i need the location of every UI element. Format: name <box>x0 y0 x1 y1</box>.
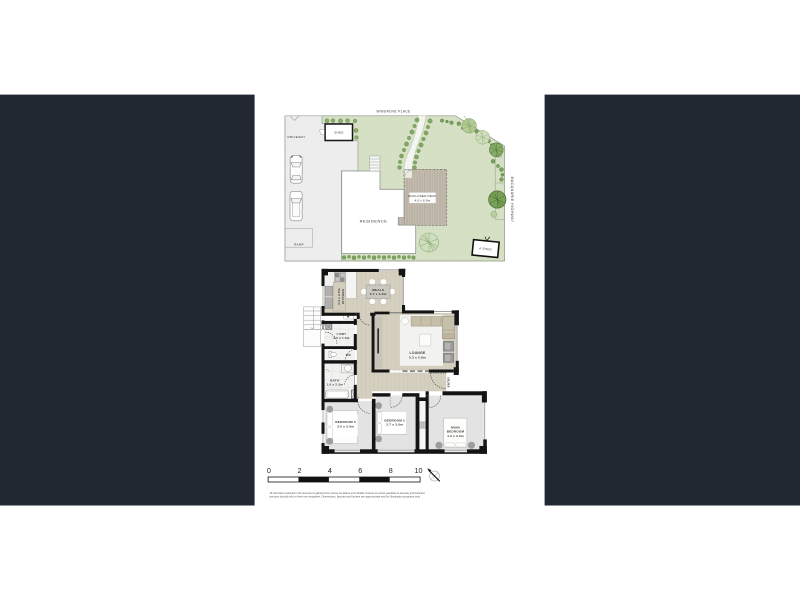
svg-text:persons should rely on their o: persons should rely on their own enquiri… <box>270 495 421 499</box>
svg-text:2: 2 <box>298 466 302 475</box>
svg-text:3.7 x 3.0m: 3.7 x 3.0m <box>370 292 387 296</box>
svg-text:3.0 x 3.0m: 3.0 x 3.0m <box>337 424 354 428</box>
svg-text:4.0 x 6.0m: 4.0 x 6.0m <box>414 198 430 202</box>
svg-text:2.7 x 3.0m: 2.7 x 3.0m <box>386 423 403 427</box>
svg-text:0: 0 <box>267 466 271 475</box>
svg-text:3.0 x 2.5m: 3.0 x 2.5m <box>337 288 341 305</box>
svg-text:LOUNGE: LOUNGE <box>410 351 426 355</box>
svg-text:ENCLOSED DECK: ENCLOSED DECK <box>408 194 436 198</box>
svg-text:DRIVEWAY: DRIVEWAY <box>287 135 305 139</box>
svg-text:4: 4 <box>328 466 332 475</box>
svg-text:WINGROVE PLACE: WINGROVE PLACE <box>377 110 411 114</box>
svg-text:6: 6 <box>358 466 362 475</box>
svg-text:RAMP: RAMP <box>294 243 304 247</box>
svg-text:1.9 x 2.2m: 1.9 x 2.2m <box>327 382 343 386</box>
svg-text:All information contained in t: All information contained in this docume… <box>270 491 425 495</box>
svg-text:5.2 x 5.8m: 5.2 x 5.8m <box>409 355 426 359</box>
svg-text:SHED: SHED <box>334 131 344 135</box>
svg-text:10: 10 <box>415 466 423 475</box>
svg-text:ENTRY: ENTRY <box>447 377 451 387</box>
svg-text:KITCHEN: KITCHEN <box>341 288 345 304</box>
svg-text:MACQUARIE HIGHWAY: MACQUARIE HIGHWAY <box>510 177 514 223</box>
svg-text:4.3 x 3.6m: 4.3 x 3.6m <box>447 434 464 438</box>
svg-text:8: 8 <box>389 466 393 475</box>
svg-text:RESIDENCE: RESIDENCE <box>360 218 388 223</box>
